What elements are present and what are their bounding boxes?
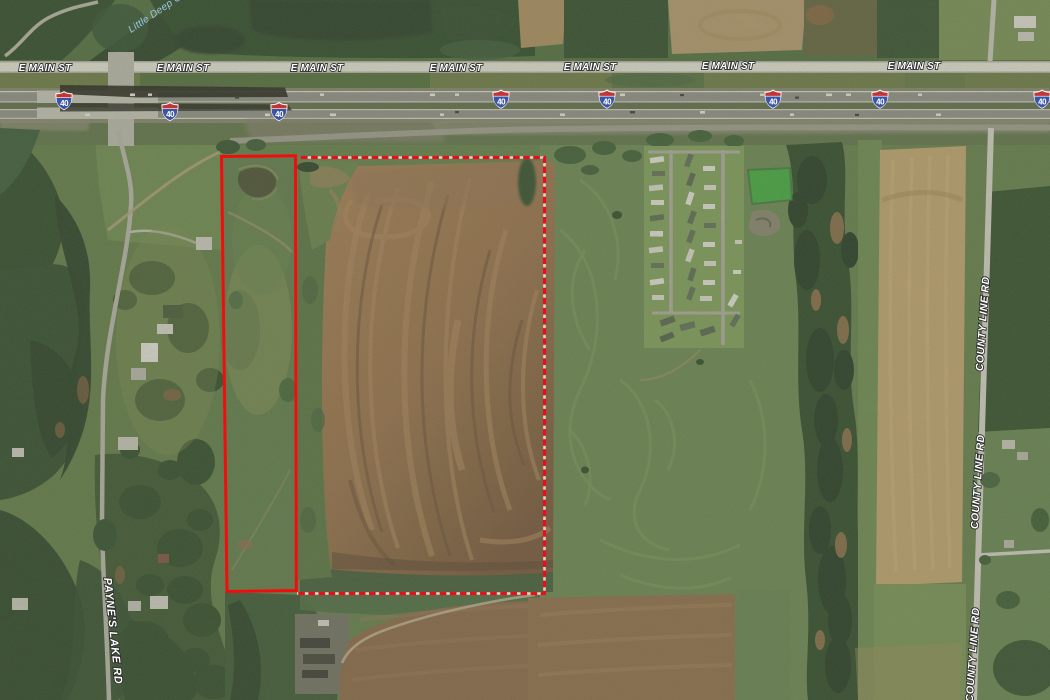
svg-text:E MAIN ST: E MAIN ST <box>702 61 755 72</box>
svg-text:E MAIN ST: E MAIN ST <box>19 63 72 74</box>
svg-text:E MAIN ST: E MAIN ST <box>291 63 344 74</box>
svg-text:E MAIN ST: E MAIN ST <box>564 62 617 73</box>
svg-text:E MAIN ST: E MAIN ST <box>430 63 483 74</box>
svg-text:E MAIN ST: E MAIN ST <box>157 63 210 74</box>
svg-text:E MAIN ST: E MAIN ST <box>888 61 941 72</box>
